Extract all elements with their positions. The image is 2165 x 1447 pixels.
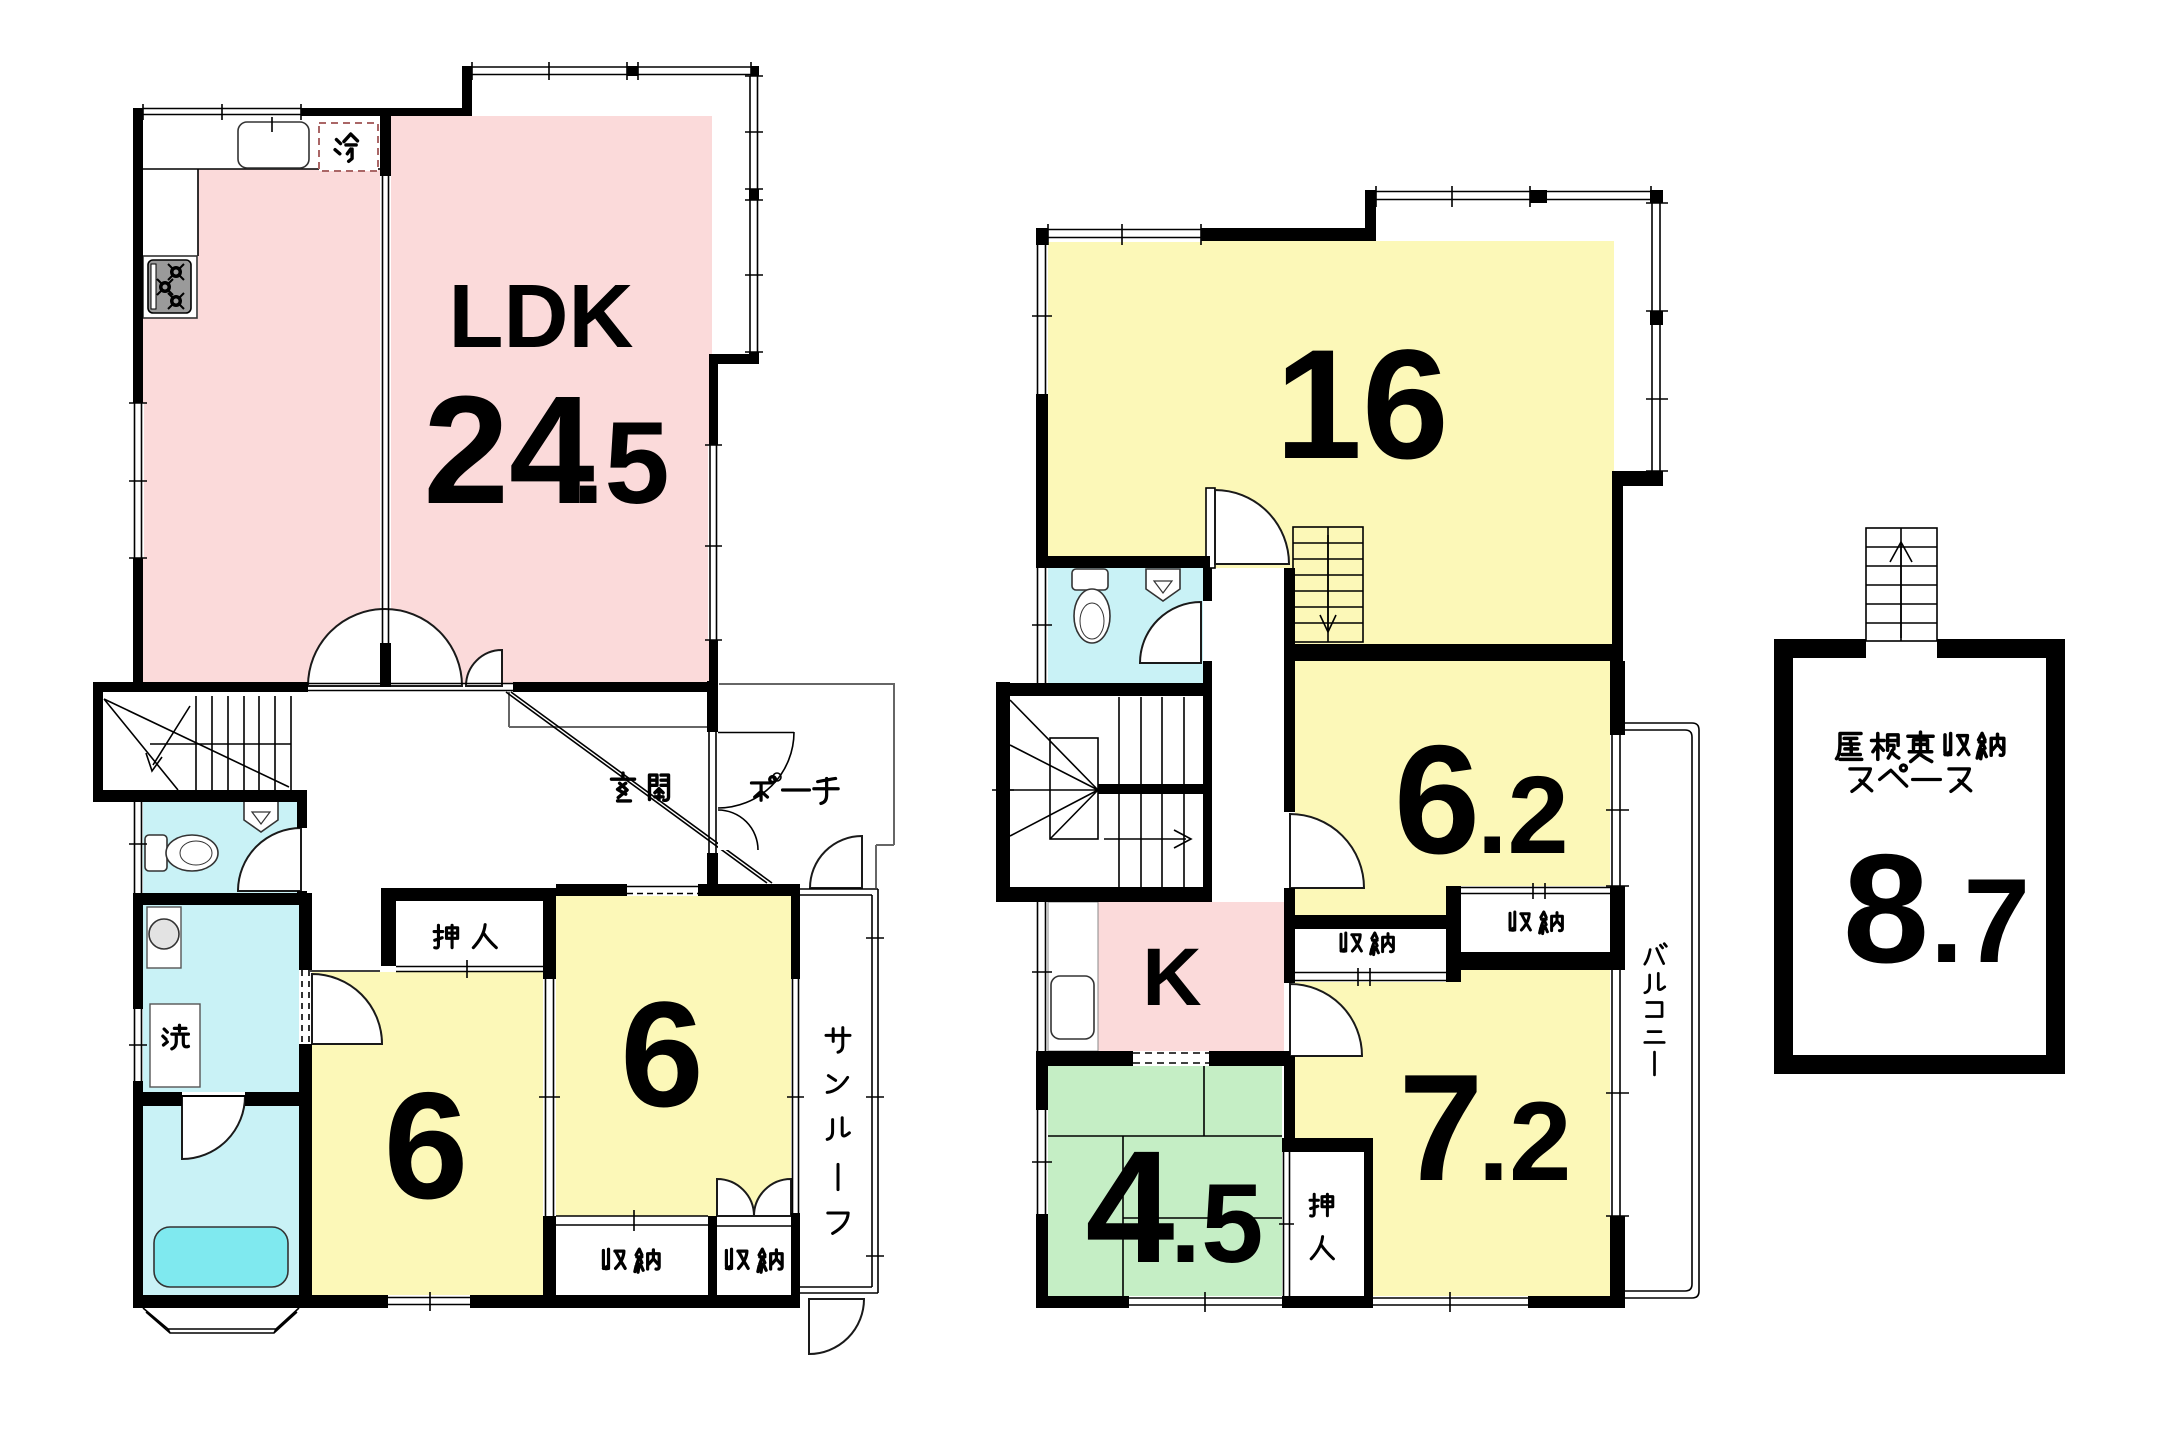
svg-text:24: 24 <box>423 364 594 536</box>
svg-text:6: 6 <box>620 970 703 1138</box>
svg-text:.5: .5 <box>1170 1161 1263 1286</box>
svg-text:K: K <box>1142 932 1201 1023</box>
svg-text:LDK: LDK <box>449 267 634 367</box>
svg-text:.2: .2 <box>1477 754 1569 877</box>
svg-text:.7: .7 <box>1930 854 2030 988</box>
svg-text:.5: .5 <box>572 397 670 528</box>
svg-text:7: 7 <box>1399 1043 1484 1213</box>
svg-text:16: 16 <box>1275 318 1449 492</box>
svg-text:8: 8 <box>1843 822 1929 995</box>
svg-text:.2: .2 <box>1478 1079 1571 1204</box>
svg-text:4: 4 <box>1086 1117 1175 1296</box>
svg-text:6: 6 <box>384 1061 469 1231</box>
svg-text:6: 6 <box>1394 713 1480 886</box>
